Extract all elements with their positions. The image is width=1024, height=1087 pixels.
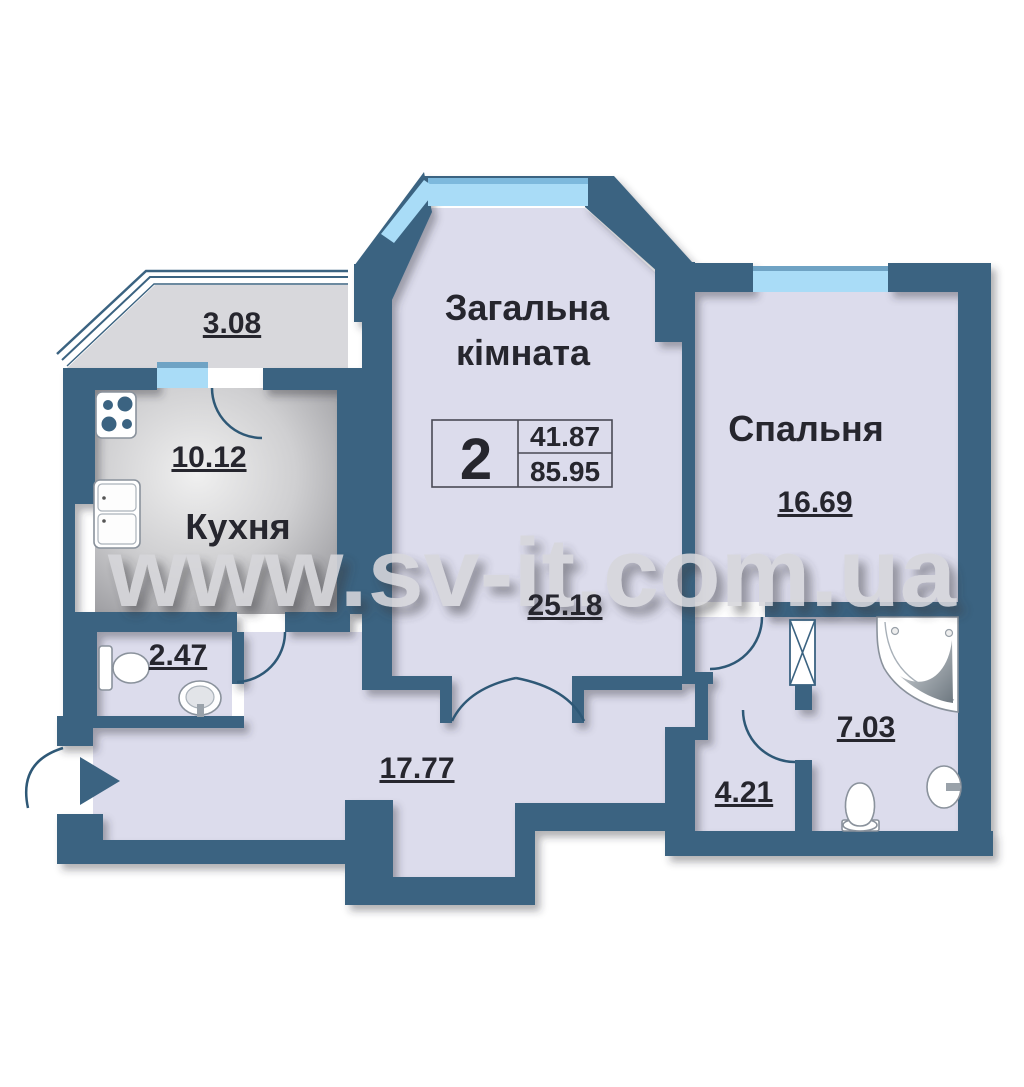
floor-plan-page: www.sv-it.com.ua Загальна кімната 25.18 … — [0, 0, 1024, 1087]
hallway-area: 17.77 — [379, 752, 454, 785]
kitchen-area: 10.12 — [171, 441, 246, 474]
rooms-count: 2 — [460, 427, 492, 492]
living-name-line1: Загальна — [445, 287, 610, 328]
kitchen-name: Кухня — [185, 506, 290, 547]
wc-area: 2.47 — [149, 639, 207, 672]
floor-plan: www.sv-it.com.ua Загальна кімната 25.18 … — [0, 0, 1024, 1087]
vent-shaft-icon — [790, 620, 815, 685]
bathroom-area: 7.03 — [837, 711, 895, 744]
bathroom-sink-icon — [927, 766, 961, 808]
bedroom-area: 16.69 — [777, 486, 852, 519]
living-name-line2: кімната — [456, 332, 591, 373]
living-area: 25.18 — [527, 589, 602, 622]
kitchen-window — [157, 362, 208, 388]
corridor-area: 4.21 — [715, 776, 773, 809]
bedroom-name: Спальня — [728, 408, 884, 449]
entrance-door-arc — [26, 748, 63, 808]
living-area-total: 41.87 — [530, 421, 600, 452]
total-area: 85.95 — [530, 456, 600, 487]
bedroom-window — [753, 266, 888, 292]
living-bay-window-top — [428, 178, 588, 206]
balcony-area: 3.08 — [203, 307, 261, 340]
stove-icon — [96, 392, 136, 438]
